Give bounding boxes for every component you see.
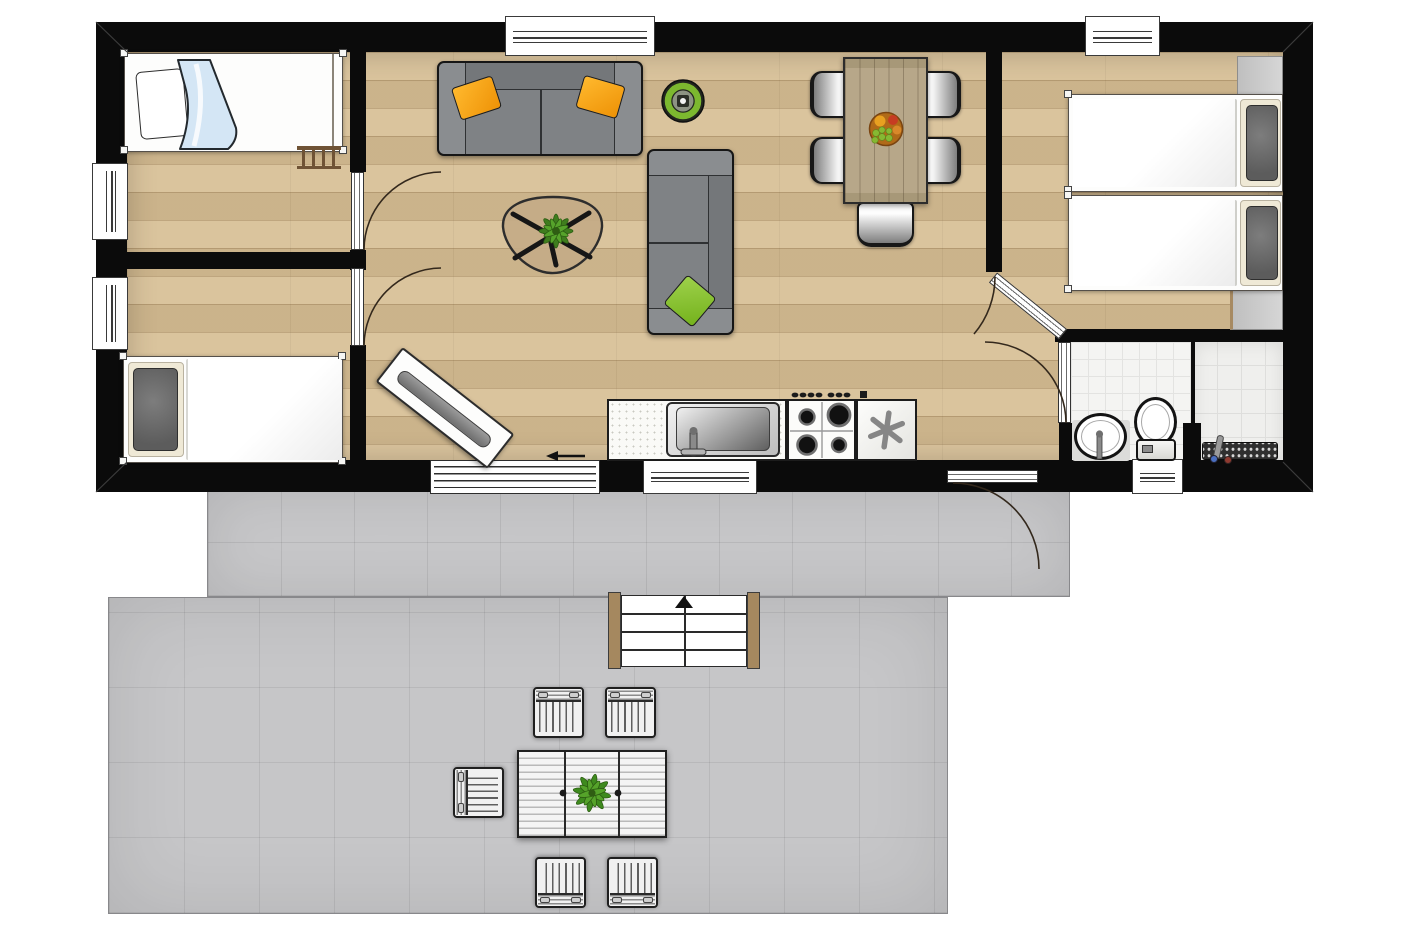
patio-chair-slats — [611, 702, 650, 732]
kitchen-sink-basin — [676, 407, 770, 451]
patio-chair — [535, 857, 586, 908]
duvet — [1073, 99, 1237, 187]
bed-post — [120, 146, 128, 154]
window-bedroom-right-top — [1085, 16, 1160, 56]
dining-chair — [857, 202, 914, 247]
wardrobe-top — [1237, 56, 1283, 97]
window-glazing — [1093, 31, 1152, 42]
sofa-back — [708, 176, 732, 308]
door-bedroom-top-left — [351, 172, 364, 250]
pillow-gray — [133, 368, 178, 451]
patio-chair — [533, 687, 584, 738]
duvet — [186, 359, 342, 460]
window-left-1 — [92, 163, 128, 240]
sliding-door — [430, 460, 600, 494]
tap-cold — [1210, 455, 1218, 463]
door-bathroom — [1058, 342, 1071, 423]
window-kitchen-bottom — [643, 458, 757, 494]
patio-chair-cap — [540, 897, 550, 903]
bed-post — [119, 457, 127, 465]
patio-chair-cap — [458, 772, 464, 782]
floor-plan-canvas — [0, 0, 1403, 934]
tap-hot — [1224, 456, 1232, 464]
sofa-seat-divider — [649, 242, 708, 244]
wall-right-bedroom — [986, 22, 1002, 272]
patio-chair-slats — [539, 702, 578, 732]
wall-right — [1283, 22, 1313, 492]
window-glazing — [513, 31, 647, 42]
fridge-freezer — [856, 399, 917, 461]
ladder-rail — [297, 166, 341, 170]
patio-chair-slats — [613, 863, 652, 893]
wall-left-bedrooms-a — [350, 52, 366, 172]
stairs-rail-right — [747, 592, 760, 669]
patio-chair — [605, 687, 656, 738]
window-glazing — [106, 171, 116, 232]
wardrobe-bottom — [1230, 287, 1283, 330]
pillow-gray — [1246, 206, 1278, 280]
bed-post — [1064, 90, 1072, 98]
shower-partition — [1191, 342, 1195, 423]
bed-post — [1064, 285, 1072, 293]
door-bedroom-bottom-left — [351, 268, 364, 346]
stairs-rail-left — [608, 592, 621, 669]
washbasin — [1074, 413, 1127, 460]
wall-bathroom-top — [1055, 329, 1313, 342]
ladder-rung — [312, 149, 315, 166]
pillow-white — [135, 68, 189, 140]
dining-table — [843, 57, 928, 204]
wall-left-bedrooms-c — [350, 345, 366, 460]
ladder-rung — [332, 149, 335, 166]
washbasin-inner — [1081, 420, 1120, 453]
patio-chair-cap — [643, 897, 653, 903]
sliding-door-panels — [434, 466, 596, 488]
door-terrace — [947, 470, 1038, 483]
ladder-rung — [302, 149, 305, 166]
shower-partition-pillar — [1183, 423, 1201, 460]
patio-chair — [607, 857, 658, 908]
patio-table-seam — [564, 752, 566, 836]
window-living-top — [505, 16, 655, 56]
patio-chair-slats — [468, 773, 498, 812]
bed-footboard-line — [332, 54, 334, 151]
sofa-seat-divider — [540, 90, 542, 154]
patio-chair-cap — [538, 692, 548, 698]
window-bathroom-bottom — [1132, 459, 1183, 494]
upper-terrace — [207, 490, 1070, 597]
patio-chair-cap — [571, 897, 581, 903]
patio-chair-cap — [569, 692, 579, 698]
patio-chair-cap — [641, 692, 651, 698]
ladder-rung — [322, 149, 325, 166]
bed-post — [1064, 191, 1072, 199]
bed-post — [120, 49, 128, 57]
bed-post — [339, 49, 347, 57]
window-glazing — [651, 472, 749, 482]
window-left-2 — [92, 277, 128, 350]
flush-button — [1142, 445, 1153, 453]
bed-ladder — [297, 146, 341, 169]
patio-table-seam — [618, 752, 620, 836]
patio-chair — [453, 767, 504, 818]
patio-chair-slats — [541, 863, 580, 893]
stair-center-line — [684, 596, 686, 666]
toilet-seat — [1141, 404, 1170, 440]
patio-chair-cap — [612, 897, 622, 903]
patio-chair-cap — [610, 692, 620, 698]
patio-chair-cap — [458, 803, 464, 813]
terrace-stairs — [621, 595, 747, 667]
window-glazing — [106, 285, 116, 342]
gas-hob — [787, 399, 856, 461]
patio-table — [517, 750, 667, 838]
wall-between-left-bedrooms — [96, 252, 366, 269]
sofa-arm-top — [649, 151, 732, 176]
window-glazing — [1140, 473, 1175, 483]
bed-post — [119, 352, 127, 360]
duvet — [1073, 200, 1237, 286]
wall-bathroom-left — [1059, 423, 1072, 460]
pillow-gray — [1246, 105, 1278, 181]
toilet-tank — [1136, 439, 1176, 461]
